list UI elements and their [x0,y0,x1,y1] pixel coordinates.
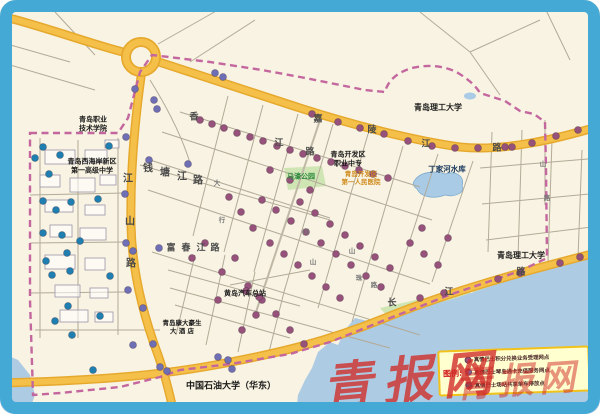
maroon-stop-dot [295,262,302,269]
maroon-stop-dot [267,240,274,247]
maroon-stop-dot [357,125,364,132]
maroon-stop-dot [247,134,254,141]
legend-rows: 真情巴士积分兑换业务受理网点 真情巴士琴岛通卡充值服务网点 真情巴士场站共享单车… [465,350,586,392]
violet-stop-dot [212,70,219,77]
maroon-stop-dot [575,127,582,134]
teal-stop-dot [97,313,104,320]
maroon-stop-dot [407,240,414,247]
maroon-stop-dot [281,251,288,258]
teal-stop-dot [67,268,74,275]
road-name-char: 行 [219,214,226,224]
qust-campus-east: 青岛理工大学 [497,251,545,261]
maroon-stop-dot [250,225,257,232]
violet-stop-dot [164,368,171,375]
legend-box: 图例: 真情巴士积分兑换业务受理网点 真情巴士琴岛通卡充值服务网点 真情巴士场站… [437,345,591,396]
teal-dot-icon [466,382,473,389]
teal-stop-dot [69,332,76,339]
campus-pond [464,93,476,100]
maroon-stop-dot [417,295,424,302]
teal-stop-dot [40,230,47,237]
teal-stop-dot [32,155,39,162]
road-name-char: 陵 [367,123,376,136]
legend-title: 图例: [443,367,463,379]
qingdao-vocational-college: 青岛职业 技术学院 [79,115,107,133]
maroon-stop-dot [495,276,502,283]
maroon-stop-dot [387,265,394,272]
legend-item: 真情巴士琴岛通卡充值服务网点 [465,365,585,377]
maroon-stop-dot [348,262,355,269]
maroon-stop-dot [318,240,325,247]
maroon-stop-dot [333,251,340,258]
teal-stop-dot [46,171,53,178]
road-name-char: 塘 [160,164,170,179]
mahao-park: 马濠公园 [287,173,315,182]
maroon-stop-dot [378,284,385,291]
violet-stop-dot [220,74,227,81]
road-name-char: 江 [123,170,133,185]
teal-stop-dot [57,152,64,159]
violet-stop-dot [229,366,236,373]
maroon-stop-dot [342,232,349,239]
violet-stop-dot [151,97,158,104]
no1-senior-high-school: 青岛西海岸新区 第一高级中学 [68,157,117,175]
maroon-dot-icon [465,356,472,363]
teal-stop-dot [90,367,97,374]
violet-stop-dot [154,106,161,113]
violet-stop-dot [185,161,192,168]
road-name-char: 珠 [356,272,363,282]
violet-stop-dot [140,305,147,312]
maroon-stop-dot [327,221,334,228]
maroon-stop-dot [288,218,295,225]
maroon-stop-dot [238,209,245,216]
reservoir-shape [413,172,463,197]
road-name-char: 路 [544,192,551,202]
road-name-char: 江 [196,241,205,254]
maroon-stop-dot [234,130,241,137]
devzone-vocational-school: 青岛开发区 职业中专 [331,150,366,168]
maroon-stop-dot [323,284,330,291]
violet-stop-dot [123,240,130,247]
maroon-stop-dot [314,155,321,162]
huangdao-bus-terminal: 黄岛汽车总站 [224,290,266,299]
teal-stop-dot [65,303,72,310]
maroon-stop-dot [297,199,304,206]
maroon-stop-dot [385,175,392,182]
maroon-stop-dot [357,243,364,250]
map-screenshot: 青岛职业 技术学院青岛西海岸新区 第一高级中学青岛开发区 职业中专青岛理工大学青… [0,0,600,414]
maroon-stop-dot [381,131,388,138]
teal-stop-dot [95,196,102,203]
violet-dot-icon [465,369,472,376]
violet-stop-dot [150,341,157,348]
maroon-stop-dot [301,341,308,348]
maroon-stop-dot [232,255,239,262]
legend-item: 真情巴士场站共享单车停放点 [466,377,586,389]
maroon-stop-dot [273,207,280,214]
maroon-stop-dot [445,235,452,242]
maroon-stop-dot [421,251,428,258]
violet-stop-dot [125,287,132,294]
road-name-char: 冈 [303,226,310,236]
maroon-stop-dot [405,138,412,145]
road-name-char: 江 [274,136,283,149]
maroon-stop-dot [260,138,267,145]
teal-stop-dot [64,250,71,257]
road-name-char: 江 [421,137,430,150]
violet-stop-dot [157,364,164,371]
maroon-stop-dot [219,269,226,276]
road-name-char: 钱 [143,160,153,175]
kangda-haosheng-hotel: 青岛康大豪生 大 酒 店 [163,319,202,335]
violet-stop-dot [130,248,137,255]
map-canvas: 青岛职业 技术学院青岛西海岸新区 第一高级中学青岛开发区 职业中专青岛理工大学青… [0,0,600,414]
teal-stop-dot [59,232,66,239]
violet-stop-dot [225,357,232,364]
violet-stop-dot [130,342,137,349]
road-name-char: 山 [540,158,547,168]
teal-stop-dot [40,144,47,151]
maroon-stop-dot [502,144,509,151]
maroon-stop-dot [312,210,319,217]
maroon-stop-dot [209,121,216,128]
maroon-stop-dot [226,194,233,201]
china-univ-petroleum: 中国石油大学（华东） [186,381,276,392]
road-name-char: 路 [210,241,219,254]
maroon-stop-dot [273,311,280,318]
teal-stop-dot [107,273,114,280]
maroon-stop-dot [287,147,294,154]
road-name-char: 山 [310,256,317,266]
maroon-stop-dot [307,187,314,194]
teal-stop-dot [68,199,75,206]
maroon-stop-dot [557,260,564,267]
teal-stop-dot [53,207,60,214]
maroon-stop-dot [419,225,426,232]
legend-item: 真情巴士积分兑换业务受理网点 [465,352,585,364]
road-name-char: 路 [126,255,136,270]
violet-stop-dot [132,86,139,93]
teal-stop-dot [52,318,59,325]
violet-stop-dot [123,134,130,141]
maroon-stop-dot [221,125,228,132]
violet-stop-dot [215,354,222,361]
maroon-stop-dot [452,145,459,152]
maroon-stop-dot [267,167,274,174]
road-name-char: 春 [181,241,190,254]
road-name-char: 长 [387,296,396,309]
maroon-stop-dot [577,254,584,261]
teal-stop-dot [40,198,47,205]
road-name-char: 香 [189,110,198,123]
road-name-char: 山 [349,245,356,255]
violet-stop-dot [156,245,163,252]
road-name-char: 路 [371,279,378,289]
road-name-char: 富 [166,241,175,254]
maroon-stop-dot [363,273,370,280]
maroon-stop-dot [287,327,294,334]
maroon-stop-dot [335,119,342,126]
maroon-stop-dot [239,327,246,334]
road-name-char: 江 [444,285,453,298]
road-name-char: 路 [193,172,203,187]
maroon-stop-dot [509,144,516,151]
road-name-char: 嘉 [313,112,322,125]
dingjiahe-reservoir: 丁家河水库 [428,164,466,173]
maroon-stop-dot [372,254,379,261]
maroon-stop-dot [337,295,344,302]
maroon-stop-dot [553,133,560,140]
maroon-stop-dot [189,255,196,262]
teal-stop-dot [49,272,56,279]
maroon-stop-dot [475,145,482,152]
maroon-stop-dot [529,140,536,147]
road-name-char: 路 [305,145,314,158]
road-name-char: 路 [492,141,501,154]
road-name-char: 路 [516,265,525,278]
teal-stop-dot [106,143,113,150]
maroon-stop-dot [435,262,442,269]
no1-peoples-hospital: 青岛开发区 第一人民医院 [342,170,381,186]
qust-campus-north: 青岛理工大学 [414,103,462,113]
road-name-char: 山 [125,213,135,228]
road-name-char: 大 [214,177,221,187]
maroon-stop-dot [215,297,222,304]
teal-stop-dot [43,258,50,265]
maroon-stop-dot [309,273,316,280]
road-name-char: 江 [177,168,187,183]
teal-stop-dot [77,238,84,245]
maroon-stop-dot [253,312,260,319]
violet-stop-dot [122,191,129,198]
maroon-stop-dot [259,197,266,204]
